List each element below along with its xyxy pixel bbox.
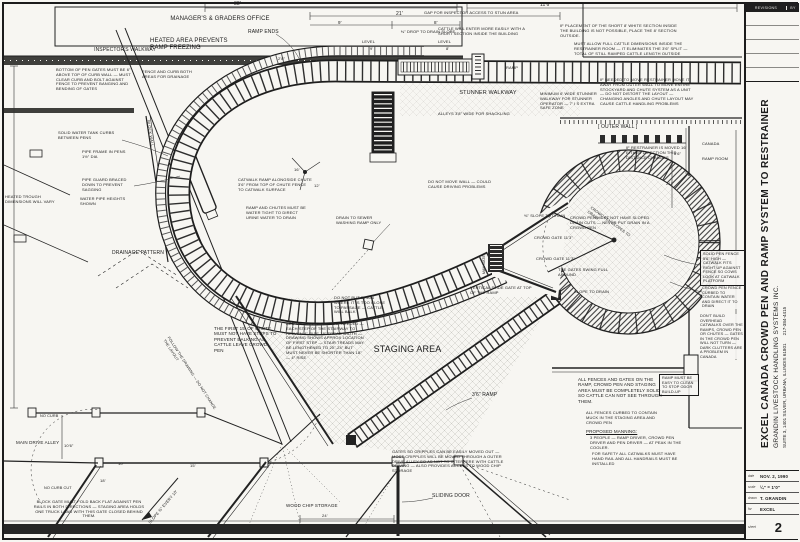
titleblock-field-for: for EXCEL <box>746 504 799 515</box>
project-title: EXCEL CANADA CROWD PEN AND RAMP SYSTEM T… <box>759 104 770 448</box>
titleblock-fields: date NOV. 2, 1990 scale ¼" = 1'0" drawn … <box>746 470 799 539</box>
field-label: sheet <box>748 525 758 529</box>
titleblock-field-drawn: drawn T. GRANDIN <box>746 493 799 504</box>
field-label: scale <box>748 485 758 489</box>
field-value: EXCEL <box>760 507 775 512</box>
revision-row <box>746 26 799 40</box>
slope-arrow <box>142 478 178 520</box>
site-plan-drawing <box>0 0 800 542</box>
revisions-table: REVISIONS BY <box>746 3 799 82</box>
titleblock-field-date: date NOV. 2, 1990 <box>746 471 799 482</box>
firm-address: SUITE 3, 1401 SILVER, URBANA, ILLINOIS 6… <box>781 343 786 448</box>
floor-drain <box>332 239 374 290</box>
wall-crenellations <box>600 135 682 143</box>
field-value: T. GRANDIN <box>760 496 787 501</box>
revisions-header: REVISIONS <box>746 6 786 10</box>
stairs <box>370 92 396 162</box>
titleblock-field-scale: scale ¼" = 1'0" <box>746 482 799 493</box>
field-label: drawn <box>748 496 758 500</box>
revisions-header-row: REVISIONS BY <box>746 3 799 12</box>
revision-row <box>746 40 799 54</box>
revision-row <box>746 12 799 26</box>
firm-phone: 217-384-4415 <box>781 307 786 336</box>
firm-name: GRANDIN LIVESTOCK HANDLING SYSTEMS INC. <box>772 104 779 448</box>
title-block: REVISIONS BY EXCEL CANADA CROWD PEN AND … <box>744 3 799 539</box>
title-area: EXCEL CANADA CROWD PEN AND RAMP SYSTEM T… <box>746 82 799 470</box>
titleblock-field-sheet: sheet 2 <box>746 515 799 539</box>
revision-row <box>746 68 799 81</box>
revision-row <box>746 54 799 68</box>
bottom-wall <box>4 521 744 534</box>
radius-compass <box>292 158 320 190</box>
field-value: 2 <box>775 520 782 535</box>
field-label: for <box>748 507 758 511</box>
field-value: NOV. 2, 1990 <box>760 474 788 479</box>
blueprint-sheet: MANAGER'S & GRADERS OFFICEINSPECTOR'S WA… <box>0 0 800 542</box>
field-label: date <box>748 474 758 478</box>
revisions-by-header: BY <box>786 6 799 10</box>
field-value: ¼" = 1'0" <box>760 485 780 490</box>
